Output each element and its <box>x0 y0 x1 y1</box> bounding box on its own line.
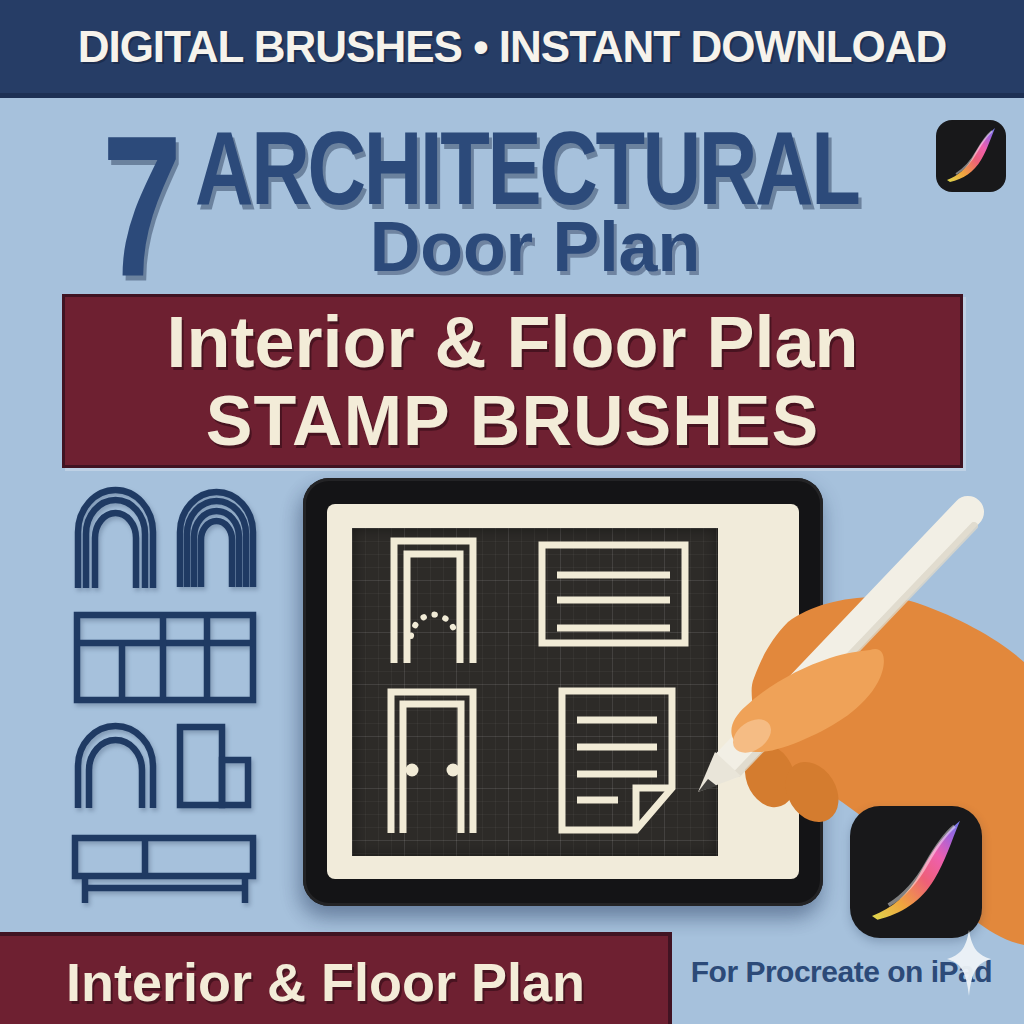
sparkle-icon <box>945 930 993 996</box>
bottom-ribbon: Interior & Floor Plan <box>0 932 672 1024</box>
double-arch-window-stamp-icon <box>78 490 153 588</box>
console-table-stamp-icon <box>75 838 253 903</box>
top-banner-text: DIGITAL BRUSHES • INSTANT DOWNLOAD <box>78 22 947 72</box>
procreate-swoosh-icon <box>936 120 1006 192</box>
title-count: 7 <box>102 106 182 306</box>
procreate-app-icon-bottom <box>850 806 982 938</box>
stamp-icons-column <box>68 486 263 906</box>
corner-cabinet-stamp-icon <box>180 727 248 805</box>
cabinet-grid-stamp-icon <box>77 615 253 700</box>
door-elevation-stamp-icon <box>391 692 473 833</box>
procreate-swoosh-icon <box>850 806 982 938</box>
title-subtitle: Door Plan <box>180 212 890 282</box>
triple-arch-window-stamp-icon <box>180 492 253 587</box>
poster-root: DIGITAL BRUSHES • INSTANT DOWNLOAD 7 ARC… <box>0 0 1024 1024</box>
top-banner: DIGITAL BRUSHES • INSTANT DOWNLOAD <box>0 0 1024 98</box>
arched-door-stamp-icon <box>78 726 153 808</box>
bottom-ribbon-text: Interior & Floor Plan <box>66 955 585 1009</box>
procreate-app-icon-top <box>936 120 1006 192</box>
ribbon-line1: Interior & Floor Plan <box>166 306 858 378</box>
title-main: ARCHITECTURAL <box>195 116 859 220</box>
arched-door-swing-stamp-icon <box>394 541 473 663</box>
